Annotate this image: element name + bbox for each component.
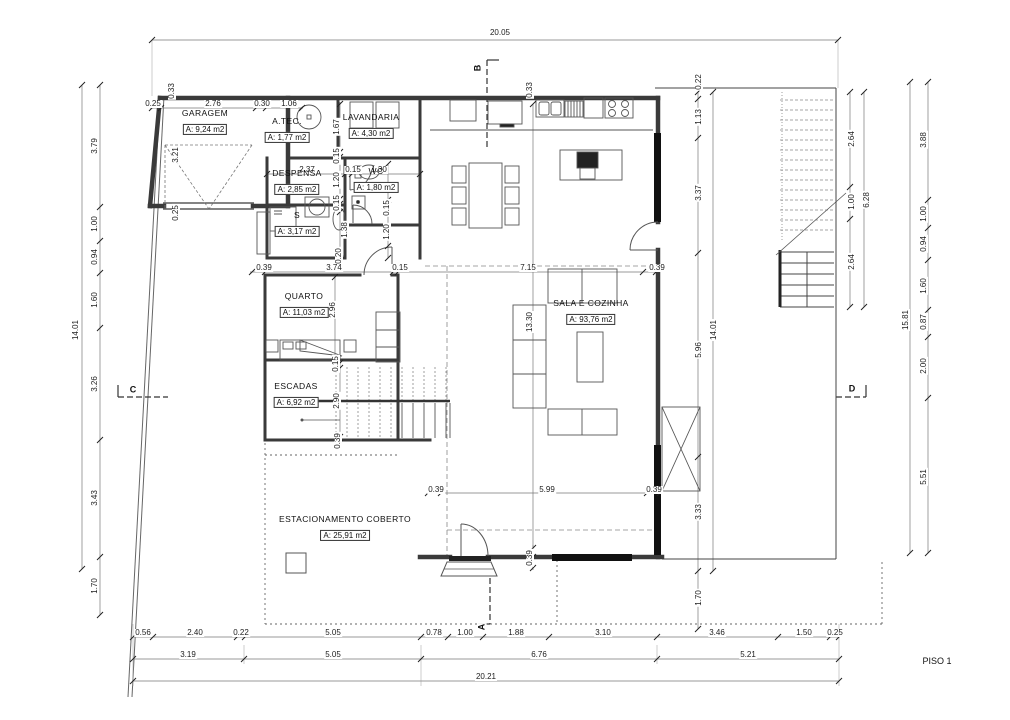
service-fixtures bbox=[257, 102, 399, 254]
washing-machine bbox=[350, 102, 373, 128]
entry-steps bbox=[441, 556, 497, 576]
parking-column bbox=[286, 553, 306, 573]
floor-plan-sheet: 20.050.330.252.760.301.060.333.210.251.6… bbox=[0, 0, 1010, 720]
water-heater bbox=[297, 105, 321, 129]
kitchen-cabinet bbox=[450, 100, 476, 121]
dimension-lines bbox=[82, 40, 928, 681]
bed bbox=[280, 340, 340, 360]
side-steps bbox=[662, 407, 700, 491]
floor-plan-drawing bbox=[0, 0, 1010, 720]
bedroom-furniture bbox=[266, 312, 400, 362]
washing-machine bbox=[376, 102, 399, 128]
coffee-table bbox=[577, 332, 603, 382]
garage-door-swing bbox=[165, 145, 252, 209]
windows bbox=[552, 133, 661, 561]
washbasin bbox=[333, 208, 345, 230]
wardrobe bbox=[376, 312, 400, 362]
extension-lines bbox=[133, 40, 839, 686]
overhang-dashed-outline bbox=[425, 266, 655, 557]
sofa-set bbox=[513, 269, 617, 435]
shower bbox=[270, 207, 296, 231]
terrace-lines bbox=[655, 88, 836, 559]
dining-table bbox=[452, 163, 519, 228]
covered-parking-outline bbox=[265, 443, 882, 624]
drawing-title: PISO 1 bbox=[922, 656, 951, 666]
kitchen-cabinet bbox=[488, 101, 522, 124]
kitchen bbox=[430, 98, 653, 180]
interior-stairs bbox=[298, 367, 450, 438]
